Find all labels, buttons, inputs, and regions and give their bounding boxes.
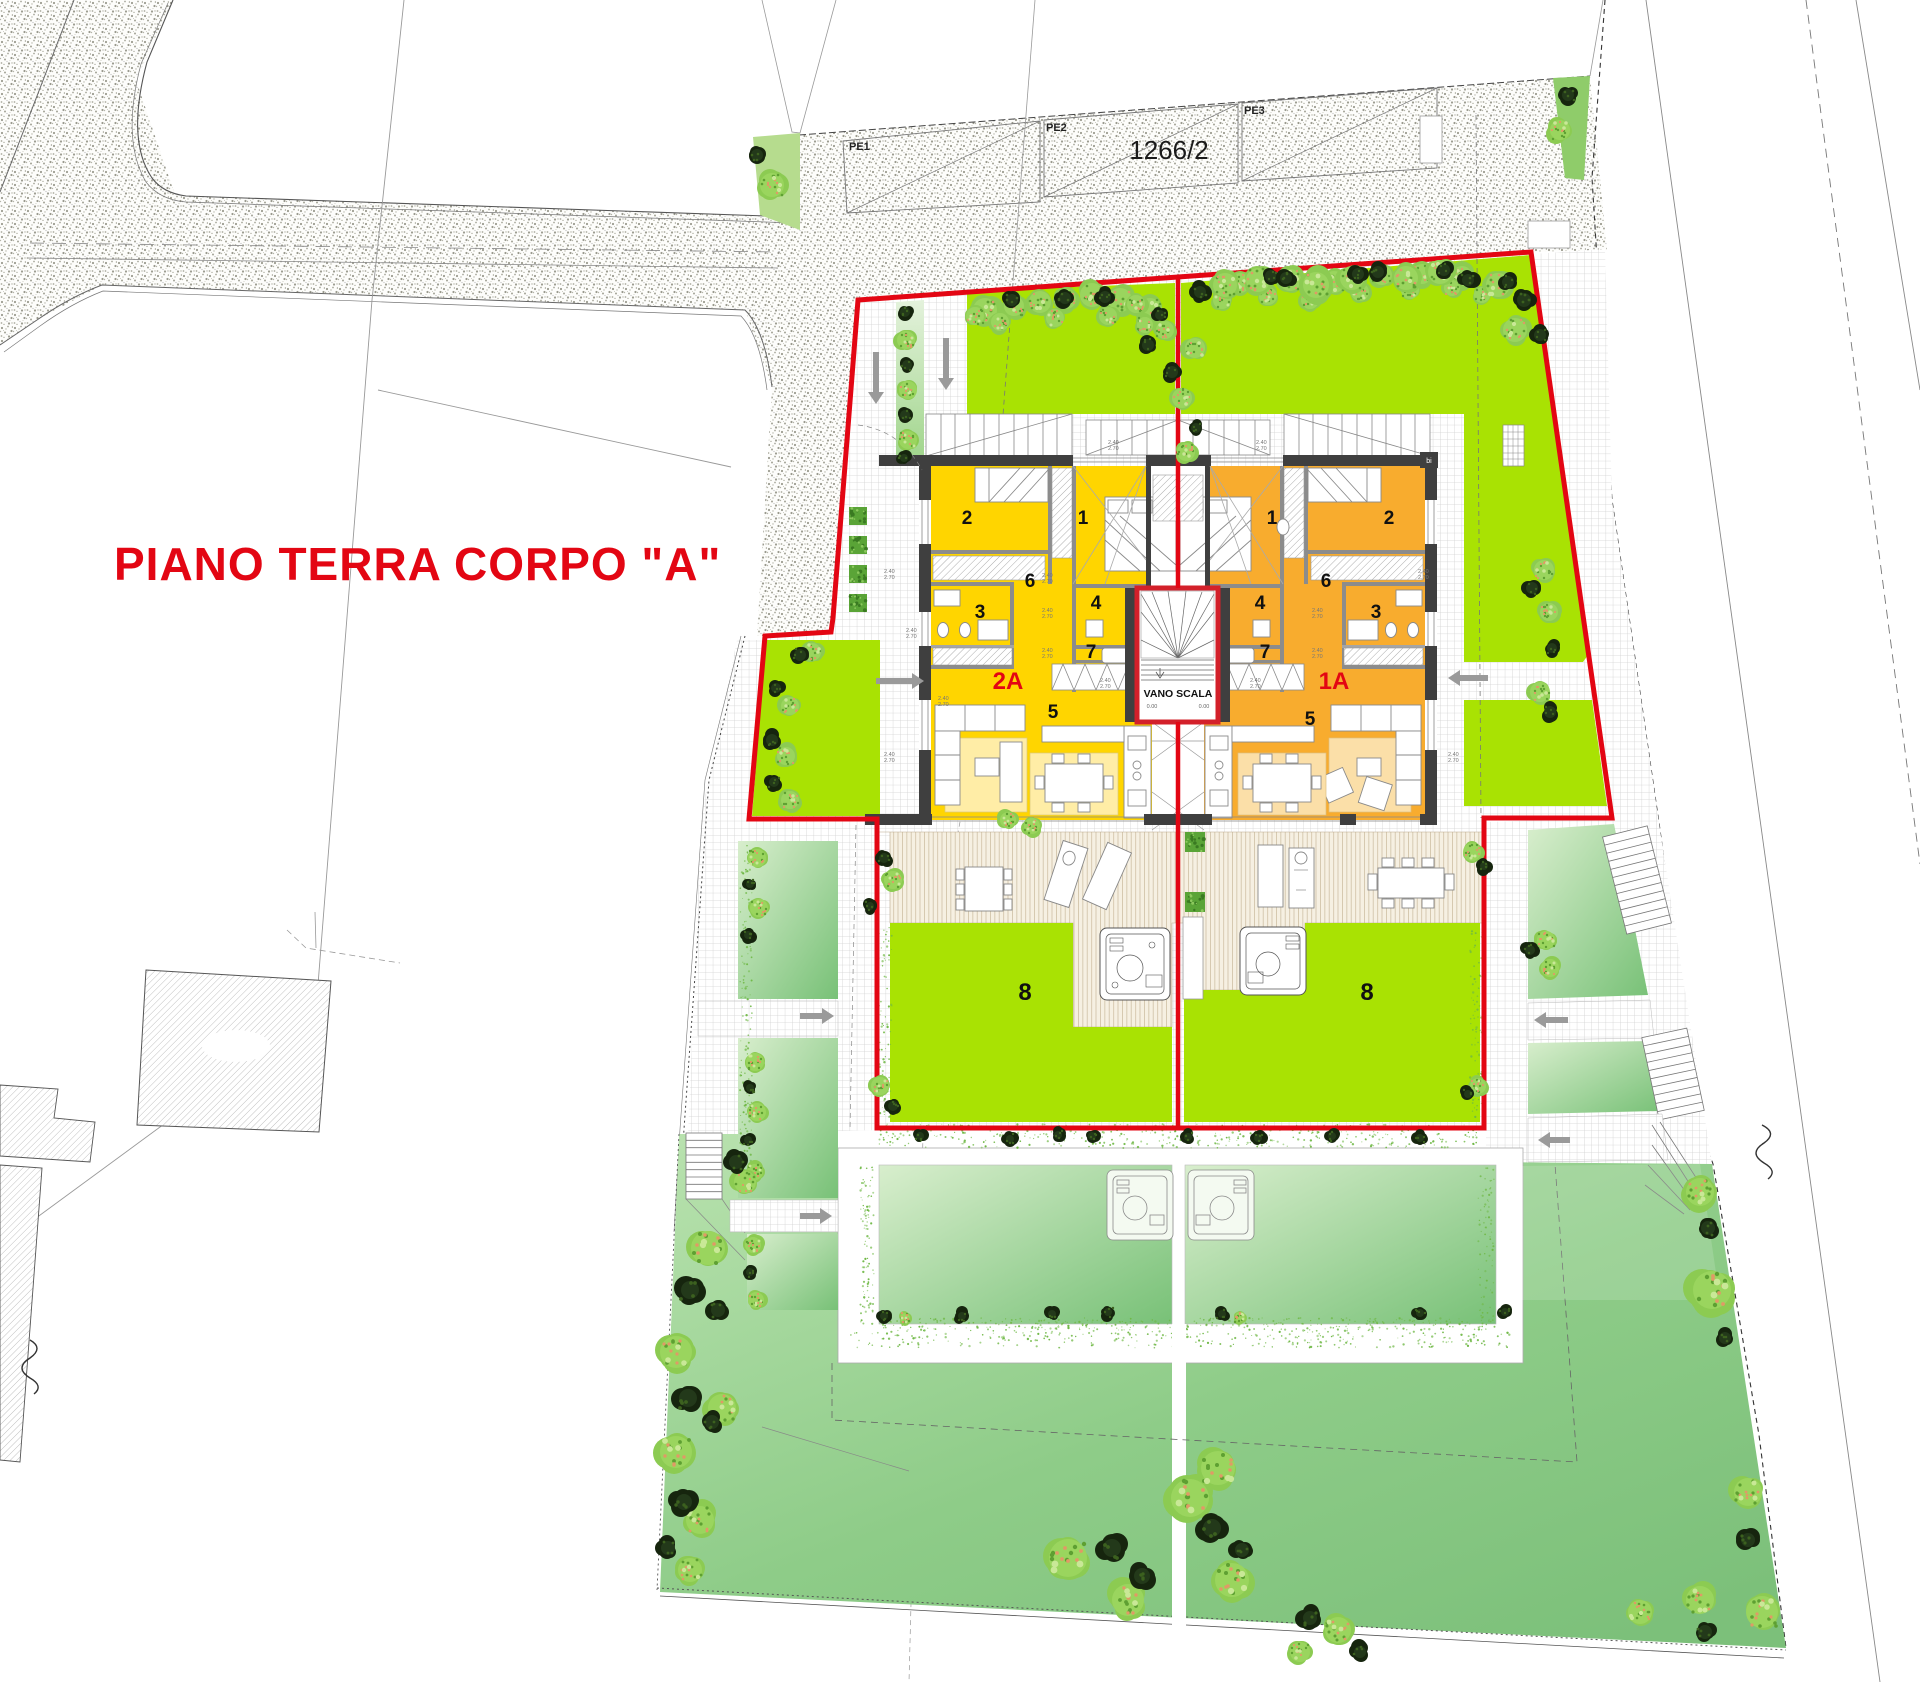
svg-text:bi: bi bbox=[1426, 458, 1432, 465]
svg-text:5: 5 bbox=[1048, 702, 1059, 723]
svg-text:0.00: 0.00 bbox=[1147, 704, 1158, 710]
svg-text:5: 5 bbox=[1305, 709, 1316, 730]
svg-text:1: 1 bbox=[1267, 508, 1278, 529]
svg-text:PE3: PE3 bbox=[1244, 105, 1265, 117]
svg-text:2.70: 2.70 bbox=[1312, 654, 1323, 660]
svg-text:8: 8 bbox=[1018, 979, 1031, 1006]
svg-text:PE1: PE1 bbox=[849, 141, 870, 153]
svg-text:6: 6 bbox=[1321, 571, 1332, 592]
svg-text:1: 1 bbox=[1078, 508, 1089, 529]
svg-text:4: 4 bbox=[1255, 593, 1266, 614]
svg-text:2.70: 2.70 bbox=[1312, 614, 1323, 620]
svg-text:2.70: 2.70 bbox=[1042, 654, 1053, 660]
svg-text:2A: 2A bbox=[993, 668, 1024, 695]
svg-text:2.70: 2.70 bbox=[884, 575, 895, 581]
svg-text:2.70: 2.70 bbox=[1108, 446, 1119, 452]
svg-text:1A: 1A bbox=[1319, 668, 1350, 695]
svg-text:6: 6 bbox=[1025, 571, 1036, 592]
svg-text:2.70: 2.70 bbox=[1042, 579, 1053, 585]
svg-text:3: 3 bbox=[1371, 602, 1382, 623]
svg-text:7: 7 bbox=[1260, 642, 1271, 663]
svg-text:2.70: 2.70 bbox=[1448, 758, 1459, 764]
svg-text:2.70: 2.70 bbox=[938, 702, 949, 708]
svg-text:0.00: 0.00 bbox=[1199, 704, 1210, 710]
svg-text:1266/2: 1266/2 bbox=[1129, 135, 1209, 165]
svg-text:2.70: 2.70 bbox=[1100, 684, 1111, 690]
svg-text:2.70: 2.70 bbox=[1250, 684, 1261, 690]
svg-text:2.70: 2.70 bbox=[906, 634, 917, 640]
svg-text:2.70: 2.70 bbox=[1042, 614, 1053, 620]
svg-text:2.70: 2.70 bbox=[884, 758, 895, 764]
svg-text:4: 4 bbox=[1091, 593, 1102, 614]
svg-text:7: 7 bbox=[1086, 642, 1097, 663]
svg-text:2.70: 2.70 bbox=[1418, 575, 1429, 581]
svg-text:2: 2 bbox=[962, 508, 973, 529]
svg-text:PIANO TERRA CORPO "A": PIANO TERRA CORPO "A" bbox=[114, 538, 721, 590]
svg-text:2: 2 bbox=[1384, 508, 1395, 529]
svg-text:VANO SCALA: VANO SCALA bbox=[1144, 688, 1213, 700]
svg-text:8: 8 bbox=[1360, 979, 1373, 1006]
svg-text:2.70: 2.70 bbox=[1256, 446, 1267, 452]
svg-text:PE2: PE2 bbox=[1046, 122, 1067, 134]
svg-text:3: 3 bbox=[975, 602, 986, 623]
